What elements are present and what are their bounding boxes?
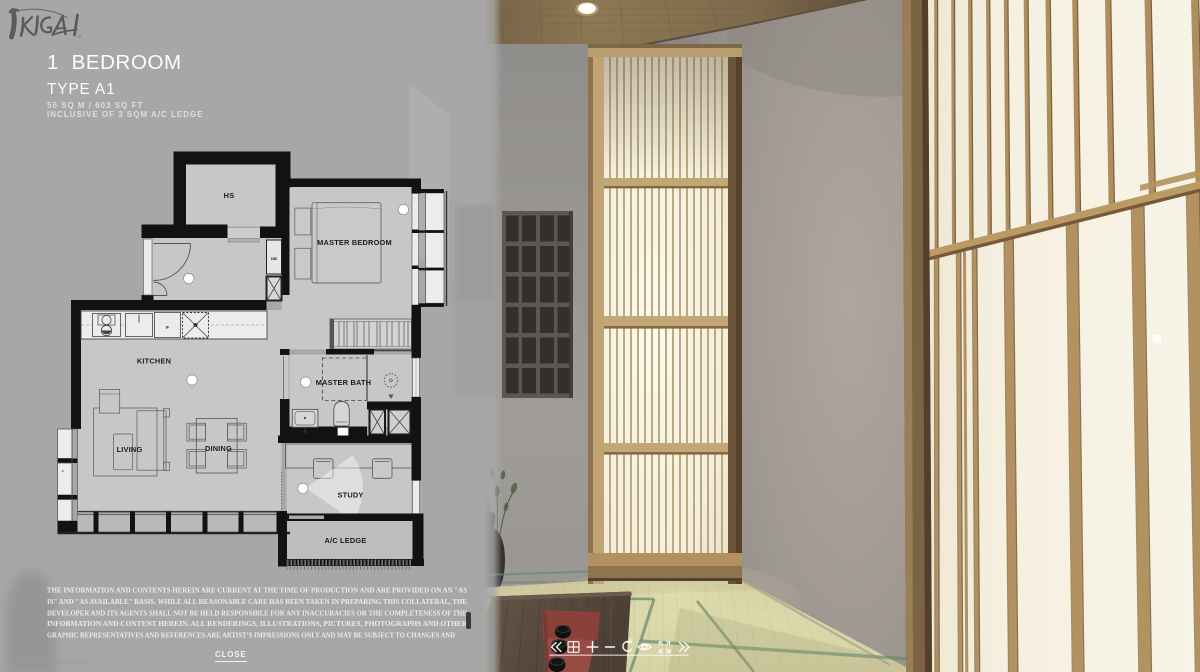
svg-text:DEVELOPER AND ITS AGENTS SHALL: DEVELOPER AND ITS AGENTS SHALL NOT BE HE… — [47, 611, 467, 618]
svg-text:INFORMATION AND CONTENT HEREIN: INFORMATION AND CONTENT HEREIN. ALL REND… — [47, 621, 468, 628]
svg-text:GRAPHIC REPRESENTATIVES AND RE: GRAPHIC REPRESENTATIVES AND REFERENCES A… — [47, 633, 455, 640]
svg-text:THE INFORMATION AND CONTENTS H: THE INFORMATION AND CONTENTS HEREIN ARE … — [47, 588, 467, 595]
svg-text:IS" AND "AS AVAILABLE" BASIS.: IS" AND "AS AVAILABLE" BASIS. WHILE ALL … — [47, 599, 467, 606]
